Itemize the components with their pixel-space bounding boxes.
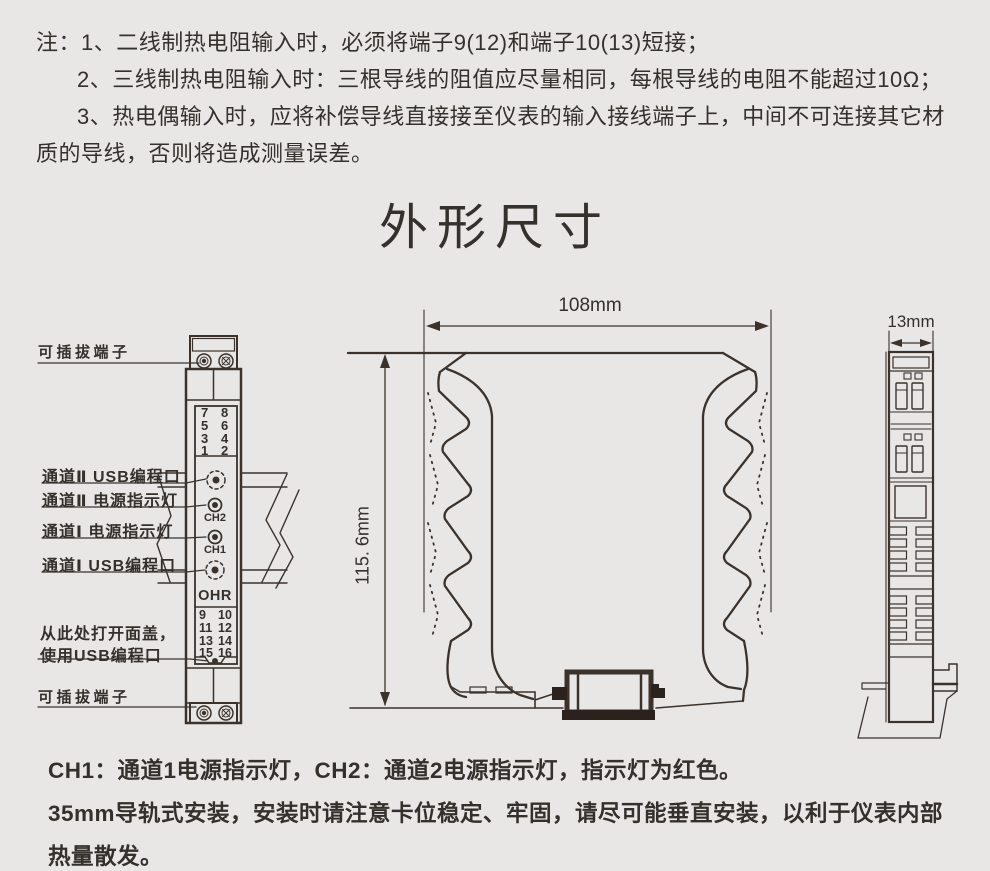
callout-open-cover: 从此处打开面盖， xyxy=(40,620,176,644)
terminal-numbers-bottom-right: 10 12 14 16 xyxy=(218,609,232,660)
usb-connector xyxy=(552,672,665,720)
note-line: 注：1、二线制热电阻输入时，必须将端子9(12)和端子10(13)短接； xyxy=(36,24,945,61)
terminal-numbers-bottom-left: 9 11 13 15 xyxy=(199,609,213,660)
manual-page: { "page": {"background": "#e9e7e6", "ink… xyxy=(0,0,990,858)
page-title: 外形尺寸 xyxy=(0,188,990,259)
top-view xyxy=(348,310,771,720)
led-label-ch1: CH1 xyxy=(201,544,229,556)
callout-open-cover: 使用USB编程口 xyxy=(40,642,162,666)
footer-line: 35mm导轨式安装，安装时请注意卡位稳定、牢固，请尽可能垂直安装，以利于仪表内部 xyxy=(48,796,943,828)
callout-bottom-terminal: 可插拔端子 xyxy=(38,686,131,707)
footer-line: 热量散发。 xyxy=(48,839,943,871)
side-view xyxy=(858,331,957,738)
callout-ch1-usb-port: 通道Ⅰ USB编程口 xyxy=(42,552,176,576)
terminal-fins xyxy=(889,527,933,657)
dimension-height-label: 115. 6mm xyxy=(353,498,374,594)
callout-ch2-usb-port: 通道Ⅱ USB编程口 xyxy=(42,463,181,487)
note-line: 质的导线，否则将造成测量误差。 xyxy=(36,135,945,172)
note-line: 3、热电偶输入时，应将补偿导线直接接至仪表的输入接线端子上，中间不可连接其它材 xyxy=(36,98,945,135)
brand-logo: OHR xyxy=(197,588,233,604)
front-view xyxy=(186,336,241,723)
callout-top-terminal: 可插拔端子 xyxy=(38,341,131,362)
din-rail-front xyxy=(157,473,299,588)
callout-ch1-power-led: 通道Ⅰ 电源指示灯 xyxy=(42,518,173,542)
vent-dots xyxy=(428,393,767,637)
top-notes: 注：1、二线制热电阻输入时，必须将端子9(12)和端子10(13)短接； 2、三… xyxy=(36,24,945,172)
dimension-width-label: 108mm xyxy=(540,295,640,317)
note-line: 2、三线制热电阻输入时：三根导线的阻值应尽量相同，每根导线的电阻不能超过10Ω； xyxy=(36,61,945,98)
footer-notes: CH1：通道1电源指示灯，CH2：通道2电源指示灯，指示灯为红色。 35mm导轨… xyxy=(48,753,943,871)
led-label-ch2: CH2 xyxy=(201,512,229,524)
terminal-numbers-top-right: 8 6 4 2 xyxy=(221,407,228,458)
callout-ch2-power-led: 通道Ⅱ 电源指示灯 xyxy=(42,487,178,511)
dimension-depth-label: 13mm xyxy=(882,312,940,332)
footer-line: CH1：通道1电源指示灯，CH2：通道2电源指示灯，指示灯为红色。 xyxy=(48,753,943,785)
terminal-numbers-top-left: 7 5 3 1 xyxy=(201,407,208,458)
